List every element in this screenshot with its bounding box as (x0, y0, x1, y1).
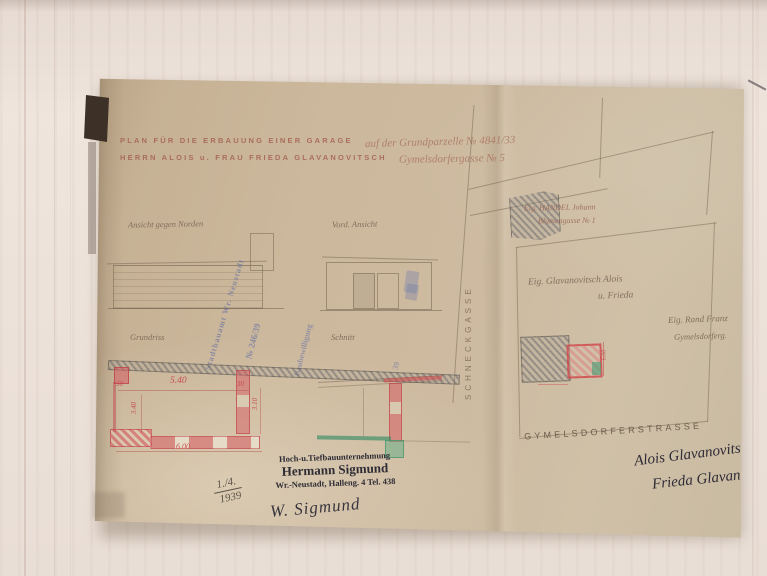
dim-line-inner (141, 395, 142, 433)
elevation-left-label: Ansicht gegen Norden (128, 218, 203, 229)
wood-grain-line (54, 0, 55, 576)
elevation-left-groundline (108, 308, 284, 309)
neighbor-right-name: Eig. Rand Franz (668, 313, 728, 325)
dark-fold-patch (84, 95, 109, 142)
left-edge-shading (88, 142, 96, 254)
dim-depth-right: 3.10 (251, 398, 259, 410)
builder-stamp: Hoch-u.Tiefbauunternehmung Hermann Sigmu… (259, 449, 410, 490)
title-line-2: HERRN ALOIS u. FRAU FRIEDA GLAVANOVITSCH… (120, 153, 505, 165)
dim-line-right (260, 388, 261, 434)
plan-wall-bottom (150, 436, 260, 449)
title-hand-1: auf der Grundparzelle № 4841/33 (365, 134, 516, 150)
garage-door (353, 273, 375, 309)
elevation-front-label: Vord. Ansicht (332, 219, 378, 230)
section-wall-gap (390, 402, 401, 414)
wood-grain-line (24, 0, 26, 576)
photo-of-blueprint: PLAN FÜR DIE ERBAUUNG EINER GARAGE auf d… (0, 0, 767, 576)
site-dim-mark (538, 384, 568, 385)
paper-corner-smudge (93, 492, 125, 518)
wood-grain-line (70, 0, 71, 576)
neighbor-top-name: Eig. HANDEL Johann (524, 202, 596, 212)
street-name-vertical: SCHNECKGASSE (464, 242, 473, 400)
dim-wall-right: 30 (237, 380, 244, 388)
section-dim-line (363, 388, 364, 436)
site-plan-house-hatch (520, 335, 571, 383)
dim-depth-inner: 3.40 (130, 402, 138, 414)
wood-grain-line (752, 0, 754, 576)
site-garage-dim: 6.00 (601, 350, 607, 361)
plan-wall-left (113, 382, 116, 432)
section-wall-red (389, 383, 402, 442)
title-typed-1: PLAN FÜR DIE ERBAUUNG EINER GARAGE (120, 136, 353, 145)
elevation-front-groundline (320, 310, 442, 311)
dim-wall-left: 30 (116, 380, 123, 388)
neighbor-top-address: Blumengasse № 1 (538, 215, 596, 225)
dim-width-total: 6.00 (176, 442, 190, 451)
plan-wall-opening (237, 395, 249, 407)
title-typed-2: HERRN ALOIS u. FRAU FRIEDA GLAVANOVITSCH (120, 153, 387, 162)
dim-line-top (118, 390, 250, 391)
date-handwritten: 1./4. 1939 (211, 474, 244, 506)
section-label: Schnitt (331, 332, 355, 342)
floor-plan-label: Grundriss (130, 332, 164, 342)
owner-annotation-2: u. Frieda (598, 290, 634, 301)
garage-door (377, 273, 399, 309)
neighbor-right-address: Gymelsdorferg. (674, 330, 727, 342)
site-plan-green (592, 362, 601, 375)
photo-top-shadow (0, 0, 767, 12)
dim-span: 5.40 (170, 376, 187, 386)
pen-mark (748, 79, 767, 90)
dim-line-bottom (116, 451, 262, 452)
plan-wall-corner (110, 429, 152, 447)
